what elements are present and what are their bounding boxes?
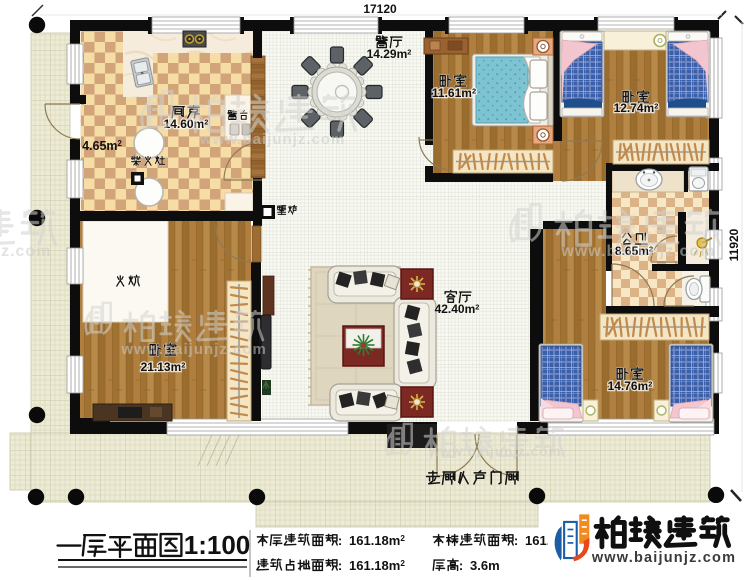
svg-text::: : <box>338 533 342 548</box>
svg-text::: : <box>459 558 463 573</box>
svg-text:www.baijunjz.com: www.baijunjz.com <box>560 243 715 260</box>
svg-text:www.baijunjz.com: www.baijunjz.com <box>428 444 562 459</box>
svg-text:17120: 17120 <box>363 2 397 16</box>
svg-text:14.76m2: 14.76m2 <box>608 379 653 393</box>
svg-text:www.baijunjz.com: www.baijunjz.com <box>120 341 266 358</box>
svg-text:14.29m2: 14.29m2 <box>367 47 412 61</box>
svg-text:www.baijunjz.com: www.baijunjz.com <box>591 550 736 566</box>
svg-text:12.74m2: 12.74m2 <box>614 101 659 115</box>
svg-text:www.baijunjz.com: www.baijunjz.com <box>0 243 51 260</box>
svg-text:1:100: 1:100 <box>184 530 251 560</box>
svg-text:161.18m2: 161.18m2 <box>349 533 405 548</box>
svg-text:161.18m2: 161.18m2 <box>349 558 405 573</box>
svg-text::: : <box>338 558 342 573</box>
svg-text:11.61m2: 11.61m2 <box>432 86 476 100</box>
svg-text:www.baijunjz.com: www.baijunjz.com <box>199 131 345 148</box>
svg-text:21.13m2: 21.13m2 <box>141 360 186 374</box>
svg-text:3.6m: 3.6m <box>470 558 500 573</box>
svg-text::: : <box>514 533 518 548</box>
svg-text:42.40m2: 42.40m2 <box>435 302 480 316</box>
svg-text:4.65m2: 4.65m2 <box>82 139 122 153</box>
svg-text:11920: 11920 <box>727 228 741 261</box>
